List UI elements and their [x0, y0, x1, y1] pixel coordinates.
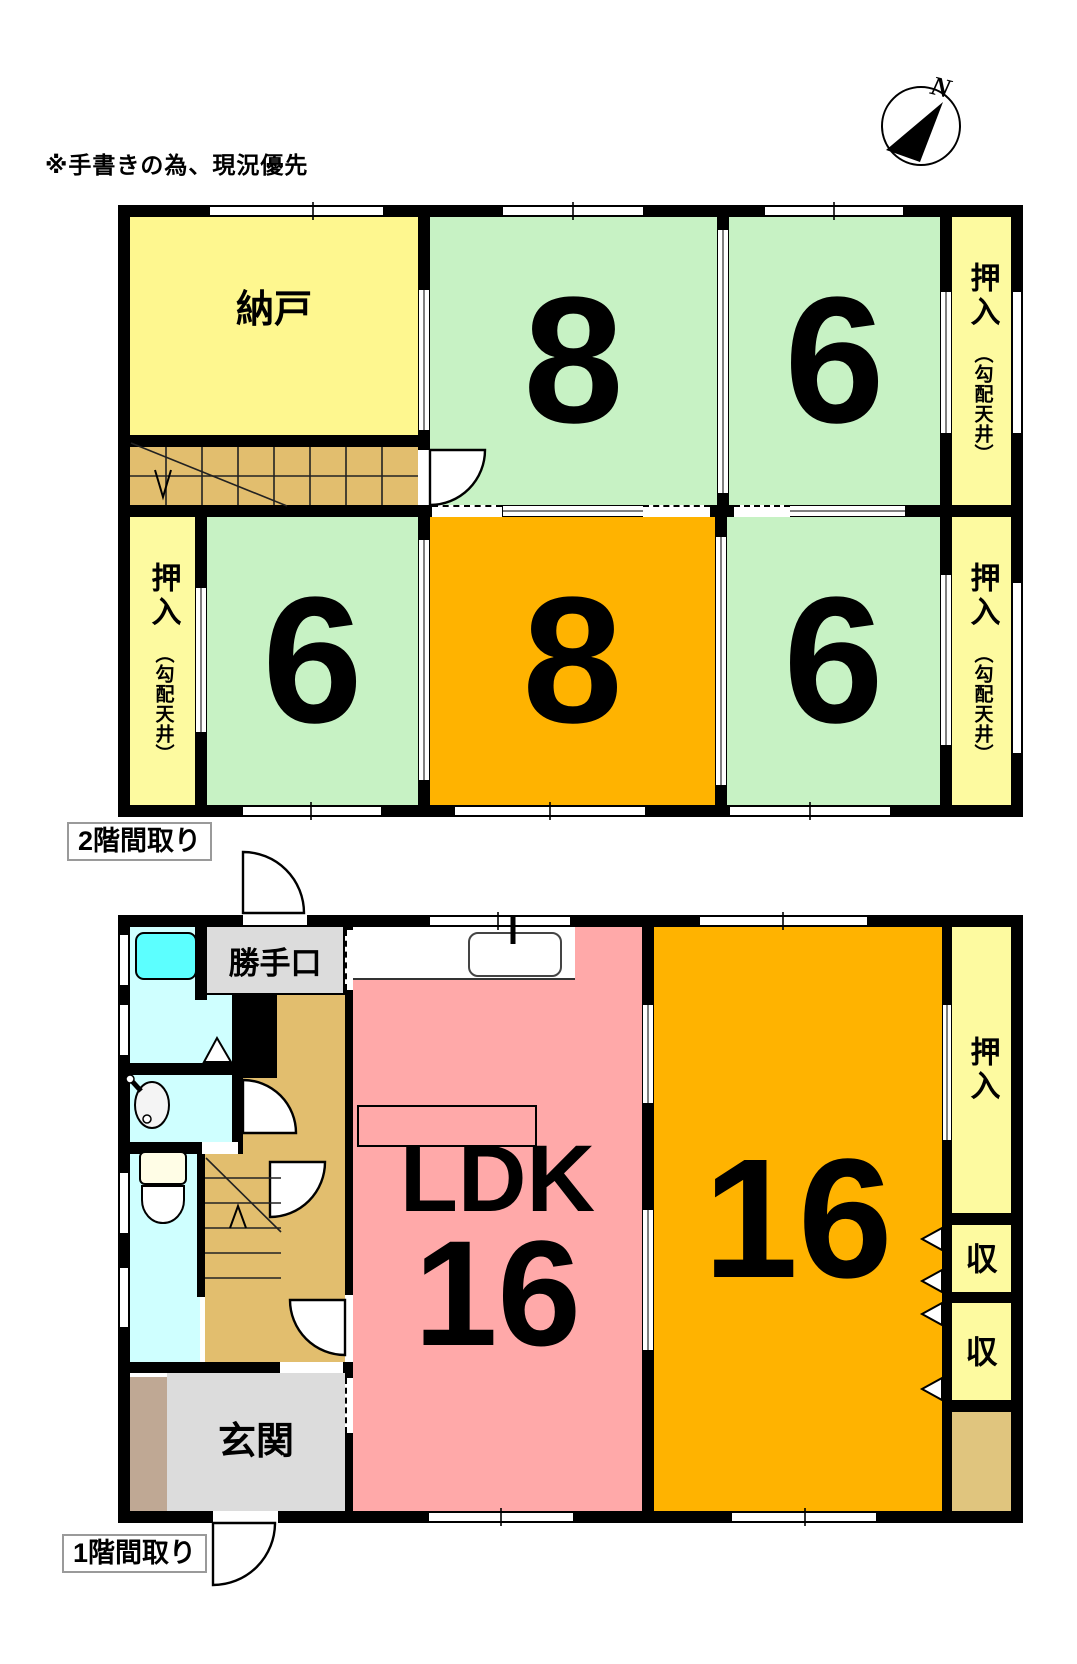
sliding-door-track	[643, 505, 710, 517]
window	[429, 1511, 573, 1523]
sliding-door	[642, 1210, 654, 1350]
oshiire-label: 押入	[967, 1036, 997, 1104]
window	[503, 205, 643, 217]
wall	[130, 1063, 232, 1075]
kitchen-sink	[468, 932, 562, 977]
ceiling-note: （勾配天井）	[972, 344, 993, 464]
wall	[1011, 915, 1023, 1523]
sliding-door	[940, 292, 952, 433]
sliding-door	[642, 1005, 654, 1103]
window	[118, 1173, 130, 1233]
oshiire-label: 押入	[966, 262, 999, 330]
window	[430, 915, 570, 927]
sliding-door	[715, 537, 727, 785]
wall	[197, 1152, 205, 1297]
wall	[952, 1292, 1011, 1303]
oshiire-label: 押入	[147, 562, 180, 630]
sliding-door-track	[432, 505, 502, 517]
handwritten-note: ※手書きの為、現況優先	[45, 146, 308, 180]
compass-north-label: N	[928, 70, 954, 105]
wall	[232, 1075, 243, 1152]
room-8-bottom-label: 8	[430, 517, 715, 805]
sliding-door	[942, 1005, 952, 1140]
sliding-door	[195, 588, 207, 732]
window	[700, 915, 867, 927]
floor1-caption: 1階間取り	[62, 1534, 207, 1573]
sliding-door	[717, 230, 729, 493]
shoe-cabinet	[130, 1377, 167, 1511]
hatch-mark	[345, 1378, 353, 1433]
sliding-door	[418, 290, 430, 430]
wall	[130, 435, 418, 447]
closet-tan	[952, 1412, 1011, 1511]
room-6-top-label: 6	[729, 217, 940, 505]
door-opening	[345, 1295, 353, 1362]
room-6-bottom-right-label: 6	[727, 517, 940, 805]
storage-upper-label: 収	[952, 1225, 1011, 1292]
window	[1011, 583, 1023, 753]
window	[118, 1268, 130, 1327]
room-6-bottom-left-label: 6	[207, 517, 418, 805]
room-8-top-label: 8	[430, 217, 717, 505]
bathtub	[135, 932, 197, 980]
oshiire-label: 押入	[966, 562, 999, 630]
door-opening	[213, 1511, 278, 1523]
wall	[118, 205, 130, 817]
stairs-2f	[130, 447, 418, 505]
storage-lower-label: 収	[952, 1303, 1011, 1400]
wall	[952, 1400, 1011, 1412]
sliding-door-track	[734, 505, 790, 517]
oshiire-1f-label: 押入	[952, 940, 1011, 1200]
katteguchi-label: 勝手口	[229, 938, 322, 983]
door-arc-entrance	[213, 1523, 275, 1585]
wall-block	[232, 992, 277, 1078]
floorplan-canvas: ※手書きの為、現況優先 N	[0, 0, 1077, 1664]
window	[732, 1511, 876, 1523]
sliding-door	[418, 540, 430, 780]
window	[118, 1005, 130, 1055]
nando-label: 納戸	[130, 290, 418, 330]
window	[455, 805, 645, 817]
window	[210, 205, 383, 217]
closet-left-label: 押入（勾配天井）	[130, 533, 195, 793]
window	[1011, 292, 1023, 433]
ceiling-note: （勾配天井）	[972, 644, 993, 764]
sliding-door	[503, 505, 643, 517]
ceiling-note: （勾配天井）	[153, 644, 174, 764]
ldk-label: LDK 16	[353, 1128, 642, 1368]
window	[730, 805, 890, 817]
toilet-room	[130, 1152, 200, 1362]
katteguchi-box: 勝手口	[205, 925, 345, 995]
sliding-door	[940, 575, 952, 745]
wall	[952, 1213, 1011, 1225]
washroom	[130, 1075, 232, 1142]
door-opening	[280, 1362, 343, 1373]
closet-bottom-right-label: 押入（勾配天井）	[952, 525, 1011, 800]
ldk-size: 16	[414, 1224, 581, 1362]
window	[243, 805, 381, 817]
door-opening	[202, 1142, 238, 1154]
floor2-caption: 2階間取り	[67, 822, 212, 861]
room-16-label: 16	[654, 927, 942, 1511]
closet-top-right-label: 押入（勾配天井）	[952, 225, 1011, 500]
hatch-mark	[345, 930, 353, 990]
window	[118, 935, 130, 985]
compass-needle	[886, 102, 943, 162]
genkan-label: 玄関	[167, 1373, 345, 1511]
sliding-door	[790, 505, 905, 517]
window	[765, 205, 903, 217]
door-arc	[243, 852, 304, 913]
